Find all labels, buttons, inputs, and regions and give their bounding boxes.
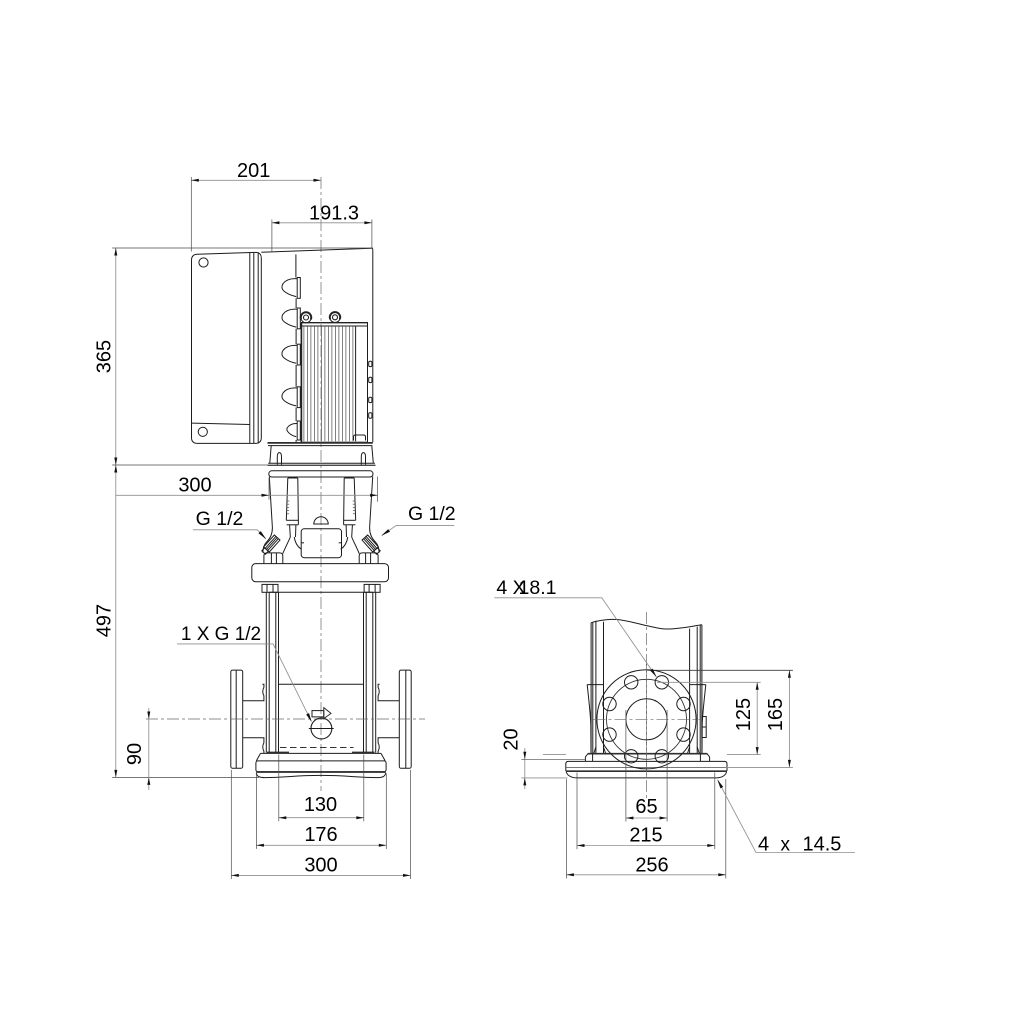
svg-text:191.3: 191.3 — [309, 203, 359, 225]
svg-text:201: 201 — [237, 160, 270, 182]
svg-text:G 1/2: G 1/2 — [196, 508, 244, 530]
svg-text:365: 365 — [93, 340, 115, 373]
svg-text:300: 300 — [304, 855, 337, 877]
svg-text:65: 65 — [635, 796, 657, 818]
svg-text:300: 300 — [178, 475, 211, 497]
svg-text:125: 125 — [733, 698, 755, 731]
svg-text:215: 215 — [629, 825, 662, 847]
svg-text:G 1/2: G 1/2 — [408, 503, 456, 525]
svg-text:20: 20 — [500, 728, 522, 750]
svg-text:130: 130 — [304, 794, 337, 816]
svg-text:165: 165 — [765, 698, 787, 731]
svg-text:256: 256 — [635, 855, 668, 877]
svg-text:18.1: 18.1 — [519, 577, 557, 599]
svg-text:1 X G 1/2: 1 X G 1/2 — [181, 624, 261, 645]
svg-text:176: 176 — [304, 824, 337, 846]
svg-text:90: 90 — [124, 743, 146, 765]
svg-text:497: 497 — [93, 604, 115, 637]
